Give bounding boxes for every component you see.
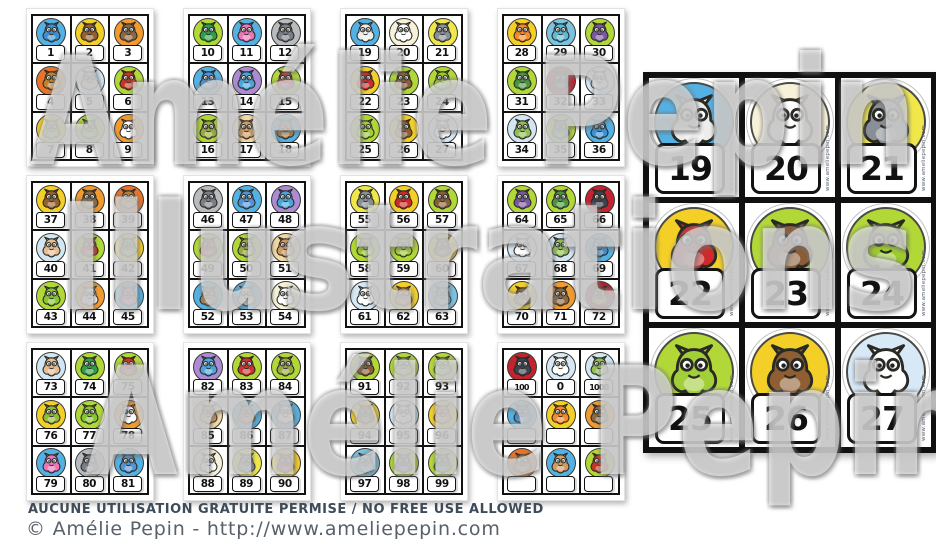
card-number: 14 [232,94,261,110]
number-card: 11 [229,16,266,62]
card-grid: 46 47 48 49 [188,181,306,328]
number-card: 9 [110,113,147,159]
number-card: 88 [190,447,227,493]
number-card: 93 [424,350,461,396]
card-number: 58 [350,261,379,277]
pegasus-icon [350,281,380,311]
number-card: 54 [267,280,304,326]
werewolf-icon [428,18,458,48]
blank-number-box [546,476,575,492]
preview-card: 19 www.ameliepepin.com [649,78,739,197]
number-card: 47 [229,183,266,229]
preview-card-number: 21 [847,143,917,194]
card-number: 19 [350,45,379,61]
card-number: 74 [75,379,104,395]
number-card: 94 [347,398,384,444]
number-card: 69 [581,231,618,277]
preview-card: 27 www.ameliepepin.com [841,328,931,447]
elf-icon [36,400,66,430]
number-card: 49 [190,231,227,277]
preview-card-number: 19 [655,143,725,194]
card-number: 39 [113,212,142,228]
blank-number-box [584,476,613,492]
genie-icon [271,185,301,215]
watermark-url-text: www.ameliepepin.com [729,250,735,316]
preview-card: 20 www.ameliepepin.com [745,78,835,197]
card-number: 90 [270,476,299,492]
princess-icon [232,185,262,215]
card-number: 3 [113,45,142,61]
number-card: 34 [504,113,541,159]
lion-icon [507,448,537,478]
number-card: 73 [33,350,70,396]
ogre-icon [350,114,380,144]
card-number: 26 [389,142,418,158]
number-card: 90 [267,447,304,493]
card-number: 49 [193,261,222,277]
number-card: 5 [72,64,109,110]
number-card: 22 [347,64,384,110]
card-number: 86 [232,428,261,444]
swamp-monster-icon [546,185,576,215]
card-number: 12 [270,45,299,61]
number-card: 43 [33,280,70,326]
card-number: 65 [546,212,575,228]
cyclops-icon [546,448,576,478]
number-card: 51 [267,231,304,277]
card-number: 29 [546,45,575,61]
mermaid-icon [546,18,576,48]
number-card: 2 [72,16,109,62]
number-card: 91 [347,350,384,396]
number-card: 98 [386,447,423,493]
fairy-icon [36,448,66,478]
ghost-icon [114,400,144,430]
hippogriff-icon [271,400,301,430]
minotaur-icon [350,352,380,382]
card-number: 43 [36,309,65,325]
card-number: 51 [270,261,299,277]
number-card [543,398,580,444]
card-number: 44 [75,309,104,325]
card-number: 16 [193,142,222,158]
card-number: 7 [36,142,65,158]
leprechaun-icon [75,352,105,382]
number-card: 19 [347,16,384,62]
card-grid: 55 56 57 58 [345,181,463,328]
yeti-icon [546,352,576,382]
card-number: 62 [389,309,418,325]
card-number: 17 [232,142,261,158]
number-card [504,447,541,493]
pegasus-icon [428,114,458,144]
preview-card-number: 23 [751,268,821,319]
card-number: 57 [427,212,456,228]
number-card: 50 [229,231,266,277]
number-card: 86 [229,398,266,444]
card-number: 69 [584,261,613,277]
vampire-icon [585,185,615,215]
number-card [581,447,618,493]
number-card: 36 [581,113,618,159]
card-number: 37 [36,212,65,228]
preview-card: 26 www.ameliepepin.com [745,328,835,447]
witch-icon [507,185,537,215]
card-number: 31 [507,94,536,110]
mermaid-icon [428,281,458,311]
watermark-url-text: www.ameliepepin.com [729,125,735,191]
werewolf-icon [350,185,380,215]
printable-sheet: 100 0 1000 [497,342,625,501]
witch-icon [389,448,419,478]
card-number: 92 [389,379,418,395]
giant-icon [232,114,262,144]
giant-icon [193,400,223,430]
number-card: 55 [347,183,384,229]
number-card: 20 [386,16,423,62]
card-number: 20 [389,45,418,61]
card-number: 83 [232,379,261,395]
watermark-url-text: www.ameliepepin.com [921,125,927,191]
card-grid: 28 29 30 31 [502,14,620,161]
usage-notice: AUCUNE UTILISATION GRATUITE PERMISE / NO… [28,502,544,517]
preview-card-number: 25 [655,393,725,444]
troll-icon [271,352,301,382]
number-card: 52 [190,280,227,326]
card-number: 63 [427,309,456,325]
number-card: 81 [110,447,147,493]
preview-sheet: 19 www.ameliepepin.com 20 www.ameliepepi… [643,72,936,453]
gargoyle-icon [193,185,223,215]
red-dragon-icon [75,233,105,263]
red-dragon-icon [585,448,615,478]
minotaur-icon [428,185,458,215]
card-number: 15 [270,94,299,110]
number-card: 26 [386,113,423,159]
sea-serpent-icon [585,114,615,144]
number-card: 14 [229,64,266,110]
number-card: 44 [72,280,109,326]
card-number: 28 [507,45,536,61]
phoenix-icon [507,18,537,48]
wizard-icon [350,66,380,96]
preview-card: 22 www.ameliepepin.com [649,203,739,322]
alien-icon [36,281,66,311]
card-number: 0 [546,379,575,395]
number-card: 4 [33,64,70,110]
card-number: 64 [507,212,536,228]
printable-sheet: 28 29 30 31 [497,8,625,167]
preview-card-number: 24 [847,268,917,319]
card-number: 8 [75,142,104,158]
card-number: 84 [270,379,299,395]
card-grid: 91 92 93 94 [345,348,463,495]
card-number: 25 [350,142,379,158]
card-number: 18 [270,142,299,158]
elf-icon [114,233,144,263]
number-card: 30 [581,16,618,62]
number-card: 8 [72,113,109,159]
number-card [543,447,580,493]
mermaid-icon [350,448,380,478]
unicorn-icon [193,448,223,478]
card-number: 75 [113,379,142,395]
griffin-icon [271,114,301,144]
card-number: 10 [193,45,222,61]
card-number: 100 [507,379,536,395]
card-number: 70 [507,309,536,325]
card-number: 1000 [584,379,613,395]
card-number: 38 [75,212,104,228]
number-card: 40 [33,231,70,277]
green-monster-icon [350,233,380,263]
number-card: 37 [33,183,70,229]
card-number: 1 [36,45,65,61]
card-number: 94 [350,428,379,444]
number-card: 59 [386,231,423,277]
sea-serpent-icon [507,400,537,430]
genie-icon [232,66,262,96]
cyclops-icon [36,352,66,382]
printable-sheet: 91 92 93 94 [340,342,468,501]
card-number: 34 [507,142,536,158]
card-number: 89 [232,476,261,492]
printable-sheet: 55 56 57 58 [340,175,468,334]
number-card: 48 [267,183,304,229]
card-number: 11 [232,45,261,61]
card-number: 93 [427,379,456,395]
gargoyle-icon [271,18,301,48]
gnome-icon [193,233,223,263]
phoenix-icon [428,400,458,430]
card-grid: 1 2 3 4 [31,14,149,161]
ghost-icon [114,114,144,144]
card-number: 98 [389,476,418,492]
card-number: 46 [193,212,222,228]
card-number: 33 [584,94,613,110]
card-number: 35 [546,142,575,158]
werewolf-icon [232,448,262,478]
number-card: 16 [190,113,227,159]
card-number: 21 [427,45,456,61]
zombie-icon [585,352,615,382]
number-card: 87 [267,398,304,444]
card-number: 5 [75,94,104,110]
blank-number-box [546,428,575,444]
card-number: 45 [113,309,142,325]
number-card: 57 [424,183,461,229]
sea-serpent-icon [36,18,66,48]
cyclops-icon [75,66,105,96]
number-card: 6 [110,64,147,110]
number-card: 68 [543,231,580,277]
number-card: 72 [581,280,618,326]
phoenix-icon [546,400,576,430]
number-card: 41 [72,231,109,277]
number-card: 53 [229,280,266,326]
number-card: 29 [543,16,580,62]
card-number: 6 [113,94,142,110]
faun-icon [389,114,419,144]
boar-icon [75,185,105,215]
genie-icon [193,352,223,382]
card-number: 68 [546,261,575,277]
green-monster-icon [428,66,458,96]
card-number: 80 [75,476,104,492]
card-number: 55 [350,212,379,228]
ogre-icon [389,233,419,263]
card-grid: 73 74 75 76 [31,348,149,495]
number-card: 12 [267,16,304,62]
wizard-icon [389,185,419,215]
leprechaun-icon [546,114,576,144]
hippogriff-icon [350,18,380,48]
number-card: 70 [504,280,541,326]
gnome-icon [232,352,262,382]
number-card: 84 [267,350,304,396]
number-card [581,398,618,444]
green-monster-icon [389,352,419,382]
yeti-icon [585,66,615,96]
number-card: 100 [504,350,541,396]
centaur-icon [36,185,66,215]
card-number: 82 [193,379,222,395]
card-grid: 64 65 66 67 [502,181,620,328]
card-grid: 37 38 39 40 [31,181,149,328]
preview-card: 24 www.ameliepepin.com [841,203,931,322]
preview-card-number: 22 [655,268,725,319]
blank-number-box [507,428,536,444]
wizard-icon [271,448,301,478]
number-card: 89 [229,447,266,493]
printable-sheet: 73 74 75 76 [26,342,154,501]
zombie-icon [507,114,537,144]
preview-card: 25 www.ameliepepin.com [649,328,739,447]
number-card: 33 [581,64,618,110]
card-number: 36 [584,142,613,158]
watermark-url-text: www.ameliepepin.com [825,375,831,441]
watermark-url-text: www.ameliepepin.com [921,250,927,316]
boar-icon [585,400,615,430]
card-number: 77 [75,428,104,444]
card-number: 72 [584,309,613,325]
troll-icon [232,233,262,263]
number-card: 71 [543,280,580,326]
card-number: 60 [427,261,456,277]
number-card: 99 [424,447,461,493]
number-card: 18 [267,113,304,159]
vampire-icon [546,66,576,96]
zombie-icon [546,233,576,263]
card-number: 61 [350,309,379,325]
leprechaun-icon [193,18,223,48]
witch-icon [585,18,615,48]
number-card: 46 [190,183,227,229]
pegasus-icon [389,400,419,430]
card-number: 50 [232,261,261,277]
number-card: 77 [72,398,109,444]
number-card: 38 [72,183,109,229]
printable-sheet: 82 83 84 85 [183,342,311,501]
card-number: 4 [36,94,65,110]
preview-card: 23 www.ameliepepin.com [745,203,835,322]
minotaur-icon [389,66,419,96]
number-card: 96 [424,398,461,444]
card-number: 87 [270,428,299,444]
number-card: 17 [229,113,266,159]
number-card: 35 [543,113,580,159]
boar-icon [546,281,576,311]
red-dragon-icon [114,66,144,96]
card-number: 40 [36,261,65,277]
sheets-grid: 1 2 3 4 [26,8,625,501]
number-card: 75 [110,350,147,396]
number-card: 58 [347,231,384,277]
number-card: 61 [347,280,384,326]
card-number: 13 [193,94,222,110]
unicorn-icon [271,281,301,311]
number-card: 42 [110,231,147,277]
card-grid: 100 0 1000 [502,348,620,495]
page-root: { "watermark": { "line1": "Amélie Pepin"… [0,0,936,550]
number-card: 64 [504,183,541,229]
card-number: 27 [427,142,456,158]
card-grid: 19 20 21 22 [345,14,463,161]
cyclops-icon [36,233,66,263]
card-number: 96 [427,428,456,444]
number-card: 1 [33,16,70,62]
number-card: 74 [72,350,109,396]
card-number: 48 [270,212,299,228]
number-card: 82 [190,350,227,396]
lion-icon [114,185,144,215]
printable-sheet: 19 20 21 22 [340,8,468,167]
card-number: 52 [193,309,222,325]
yeti-icon [507,233,537,263]
card-number: 99 [427,476,456,492]
blank-number-box [507,476,536,492]
gnome-icon [271,66,301,96]
card-number: 22 [350,94,379,110]
red-dragon-icon [114,352,144,382]
card-number: 53 [232,309,261,325]
princess-icon [114,448,144,478]
number-card: 24 [424,64,461,110]
number-card: 1000 [581,350,618,396]
card-number: 56 [389,212,418,228]
fairy-icon [232,18,262,48]
printable-sheet: 46 47 48 49 [183,175,311,334]
ogre-icon [428,352,458,382]
lion-icon [585,281,615,311]
printable-sheet: 37 38 39 40 [26,175,154,334]
alien-icon [75,114,105,144]
card-number: 41 [75,261,104,277]
card-number: 2 [75,45,104,61]
card-number: 95 [389,428,418,444]
card-number: 30 [584,45,613,61]
number-card: 92 [386,350,423,396]
card-number: 73 [36,379,65,395]
number-card: 10 [190,16,227,62]
card-grid: 10 11 12 13 [188,14,306,161]
centaur-icon [507,281,537,311]
number-card: 95 [386,398,423,444]
card-number: 47 [232,212,261,228]
card-number: 71 [546,309,575,325]
swamp-monster-icon [507,66,537,96]
alien-icon [75,400,105,430]
